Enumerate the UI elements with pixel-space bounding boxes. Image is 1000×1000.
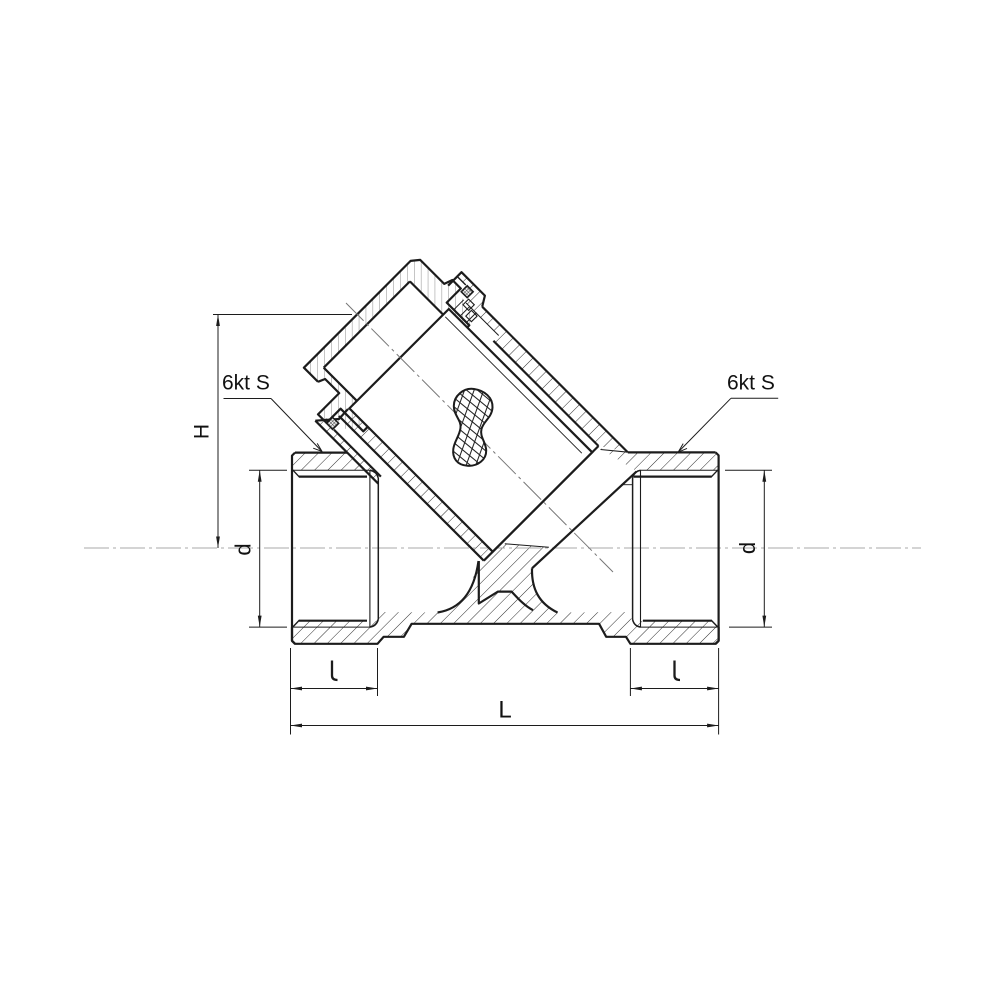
svg-text:d: d	[735, 542, 760, 554]
svg-text:d: d	[231, 543, 256, 555]
svg-text:H: H	[191, 424, 214, 439]
svg-text:L: L	[498, 697, 511, 724]
svg-text:6kt S: 6kt S	[222, 372, 270, 395]
svg-text:6kt S: 6kt S	[727, 372, 775, 395]
